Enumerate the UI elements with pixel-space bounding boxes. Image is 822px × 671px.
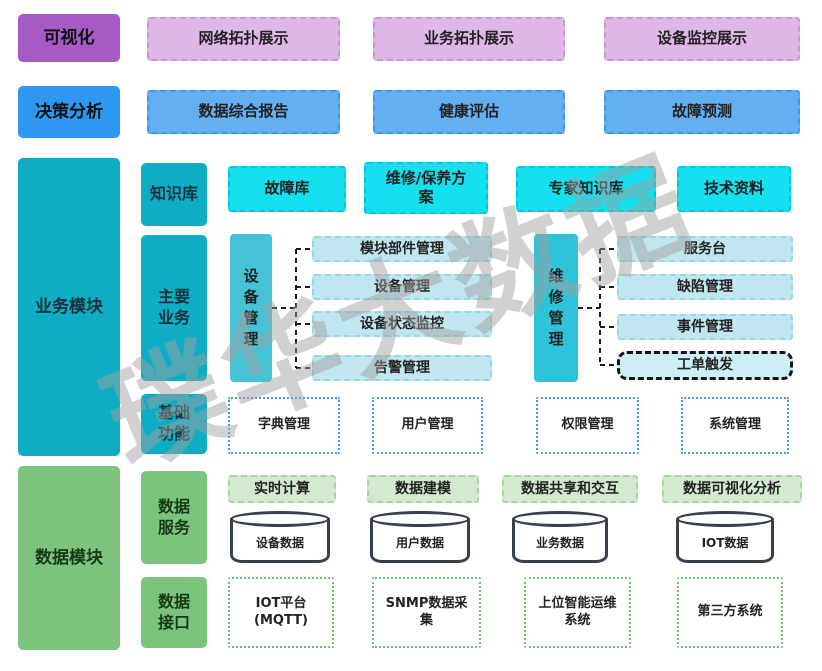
device-item-module-parts: 模块部件管理 <box>312 236 492 262</box>
repair-item-work-order-trigger: 工单触发 <box>617 351 793 380</box>
basic-functions-label: 基础 功能 <box>141 394 207 454</box>
service-item-data-sharing: 数据共享和交互 <box>502 475 638 503</box>
interface-item-iot-platform-mqtt: IOT平台 (MQTT) <box>228 577 334 648</box>
interface-item-third-party-system: 第三方系统 <box>677 577 783 648</box>
decision-item-fault-prediction: 故障预测 <box>604 90 800 134</box>
service-item-data-visualization-analysis: 数据可视化分析 <box>662 475 802 503</box>
basic-item-user-management: 用户管理 <box>372 397 483 454</box>
knowledge-base-label: 知识库 <box>141 163 207 226</box>
knowledge-item-expert-knowledge: 专家知识库 <box>516 166 656 212</box>
data-interfaces-label: 数据 接口 <box>141 577 207 648</box>
architecture-diagram: 可视化 网络拓扑展示 业务拓扑展示 设备监控展示 决策分析 数据综合报告 健康评… <box>0 0 822 671</box>
data-services-label: 数据 服务 <box>141 471 207 564</box>
database-cylinder-device-data: 设备数据 <box>230 519 330 563</box>
database-cylinder-iot-data: IOT数据 <box>676 519 774 563</box>
repair-item-defect-management: 缺陷管理 <box>617 274 793 300</box>
decision-item-health-evaluation: 健康评估 <box>373 90 565 134</box>
repair-management-group-label: 维 修 管 理 <box>534 234 578 382</box>
decision-layer-label: 决策分析 <box>18 86 120 138</box>
visualization-item-device-monitoring: 设备监控展示 <box>604 17 800 61</box>
visualization-item-network-topology: 网络拓扑展示 <box>147 17 340 61</box>
basic-item-permission-management: 权限管理 <box>536 397 639 454</box>
knowledge-item-maintenance-plan: 维修/保养方 案 <box>364 162 488 214</box>
database-label: 用户数据 <box>373 534 467 551</box>
device-item-device-management: 设备管理 <box>312 274 492 300</box>
main-business-label: 主要 业务 <box>141 235 207 381</box>
repair-item-event-management: 事件管理 <box>617 314 793 340</box>
service-item-realtime-computing: 实时计算 <box>228 475 336 503</box>
knowledge-item-technical-documents: 技术资料 <box>677 166 791 212</box>
database-label: IOT数据 <box>679 534 771 551</box>
database-cylinder-business-data: 业务数据 <box>512 519 608 563</box>
knowledge-item-fault-library: 故障库 <box>228 166 346 212</box>
visualization-layer-label: 可视化 <box>18 14 120 62</box>
device-item-alarm-management: 告警管理 <box>312 355 492 381</box>
database-label: 设备数据 <box>233 534 327 551</box>
device-management-group-label: 设 备 管 理 <box>230 234 272 382</box>
device-item-status-monitoring: 设备状态监控 <box>312 311 492 337</box>
interface-item-upper-intelligent-ops-system: 上位智能运维 系统 <box>524 577 631 648</box>
data-module-label: 数据模块 <box>18 466 120 650</box>
repair-connector-bracket <box>578 242 618 376</box>
decision-item-data-report: 数据综合报告 <box>147 90 340 134</box>
basic-item-system-management: 系统管理 <box>681 397 789 454</box>
basic-item-dictionary-management: 字典管理 <box>228 397 340 454</box>
repair-item-service-desk: 服务台 <box>617 236 793 262</box>
interface-item-snmp-collection: SNMP数据采 集 <box>372 577 481 648</box>
device-connector-bracket <box>272 242 316 376</box>
database-cylinder-user-data: 用户数据 <box>370 519 470 563</box>
business-module-label: 业务模块 <box>18 158 120 456</box>
service-item-data-modeling: 数据建模 <box>367 475 479 503</box>
database-label: 业务数据 <box>515 534 605 551</box>
visualization-item-business-topology: 业务拓扑展示 <box>373 17 565 61</box>
